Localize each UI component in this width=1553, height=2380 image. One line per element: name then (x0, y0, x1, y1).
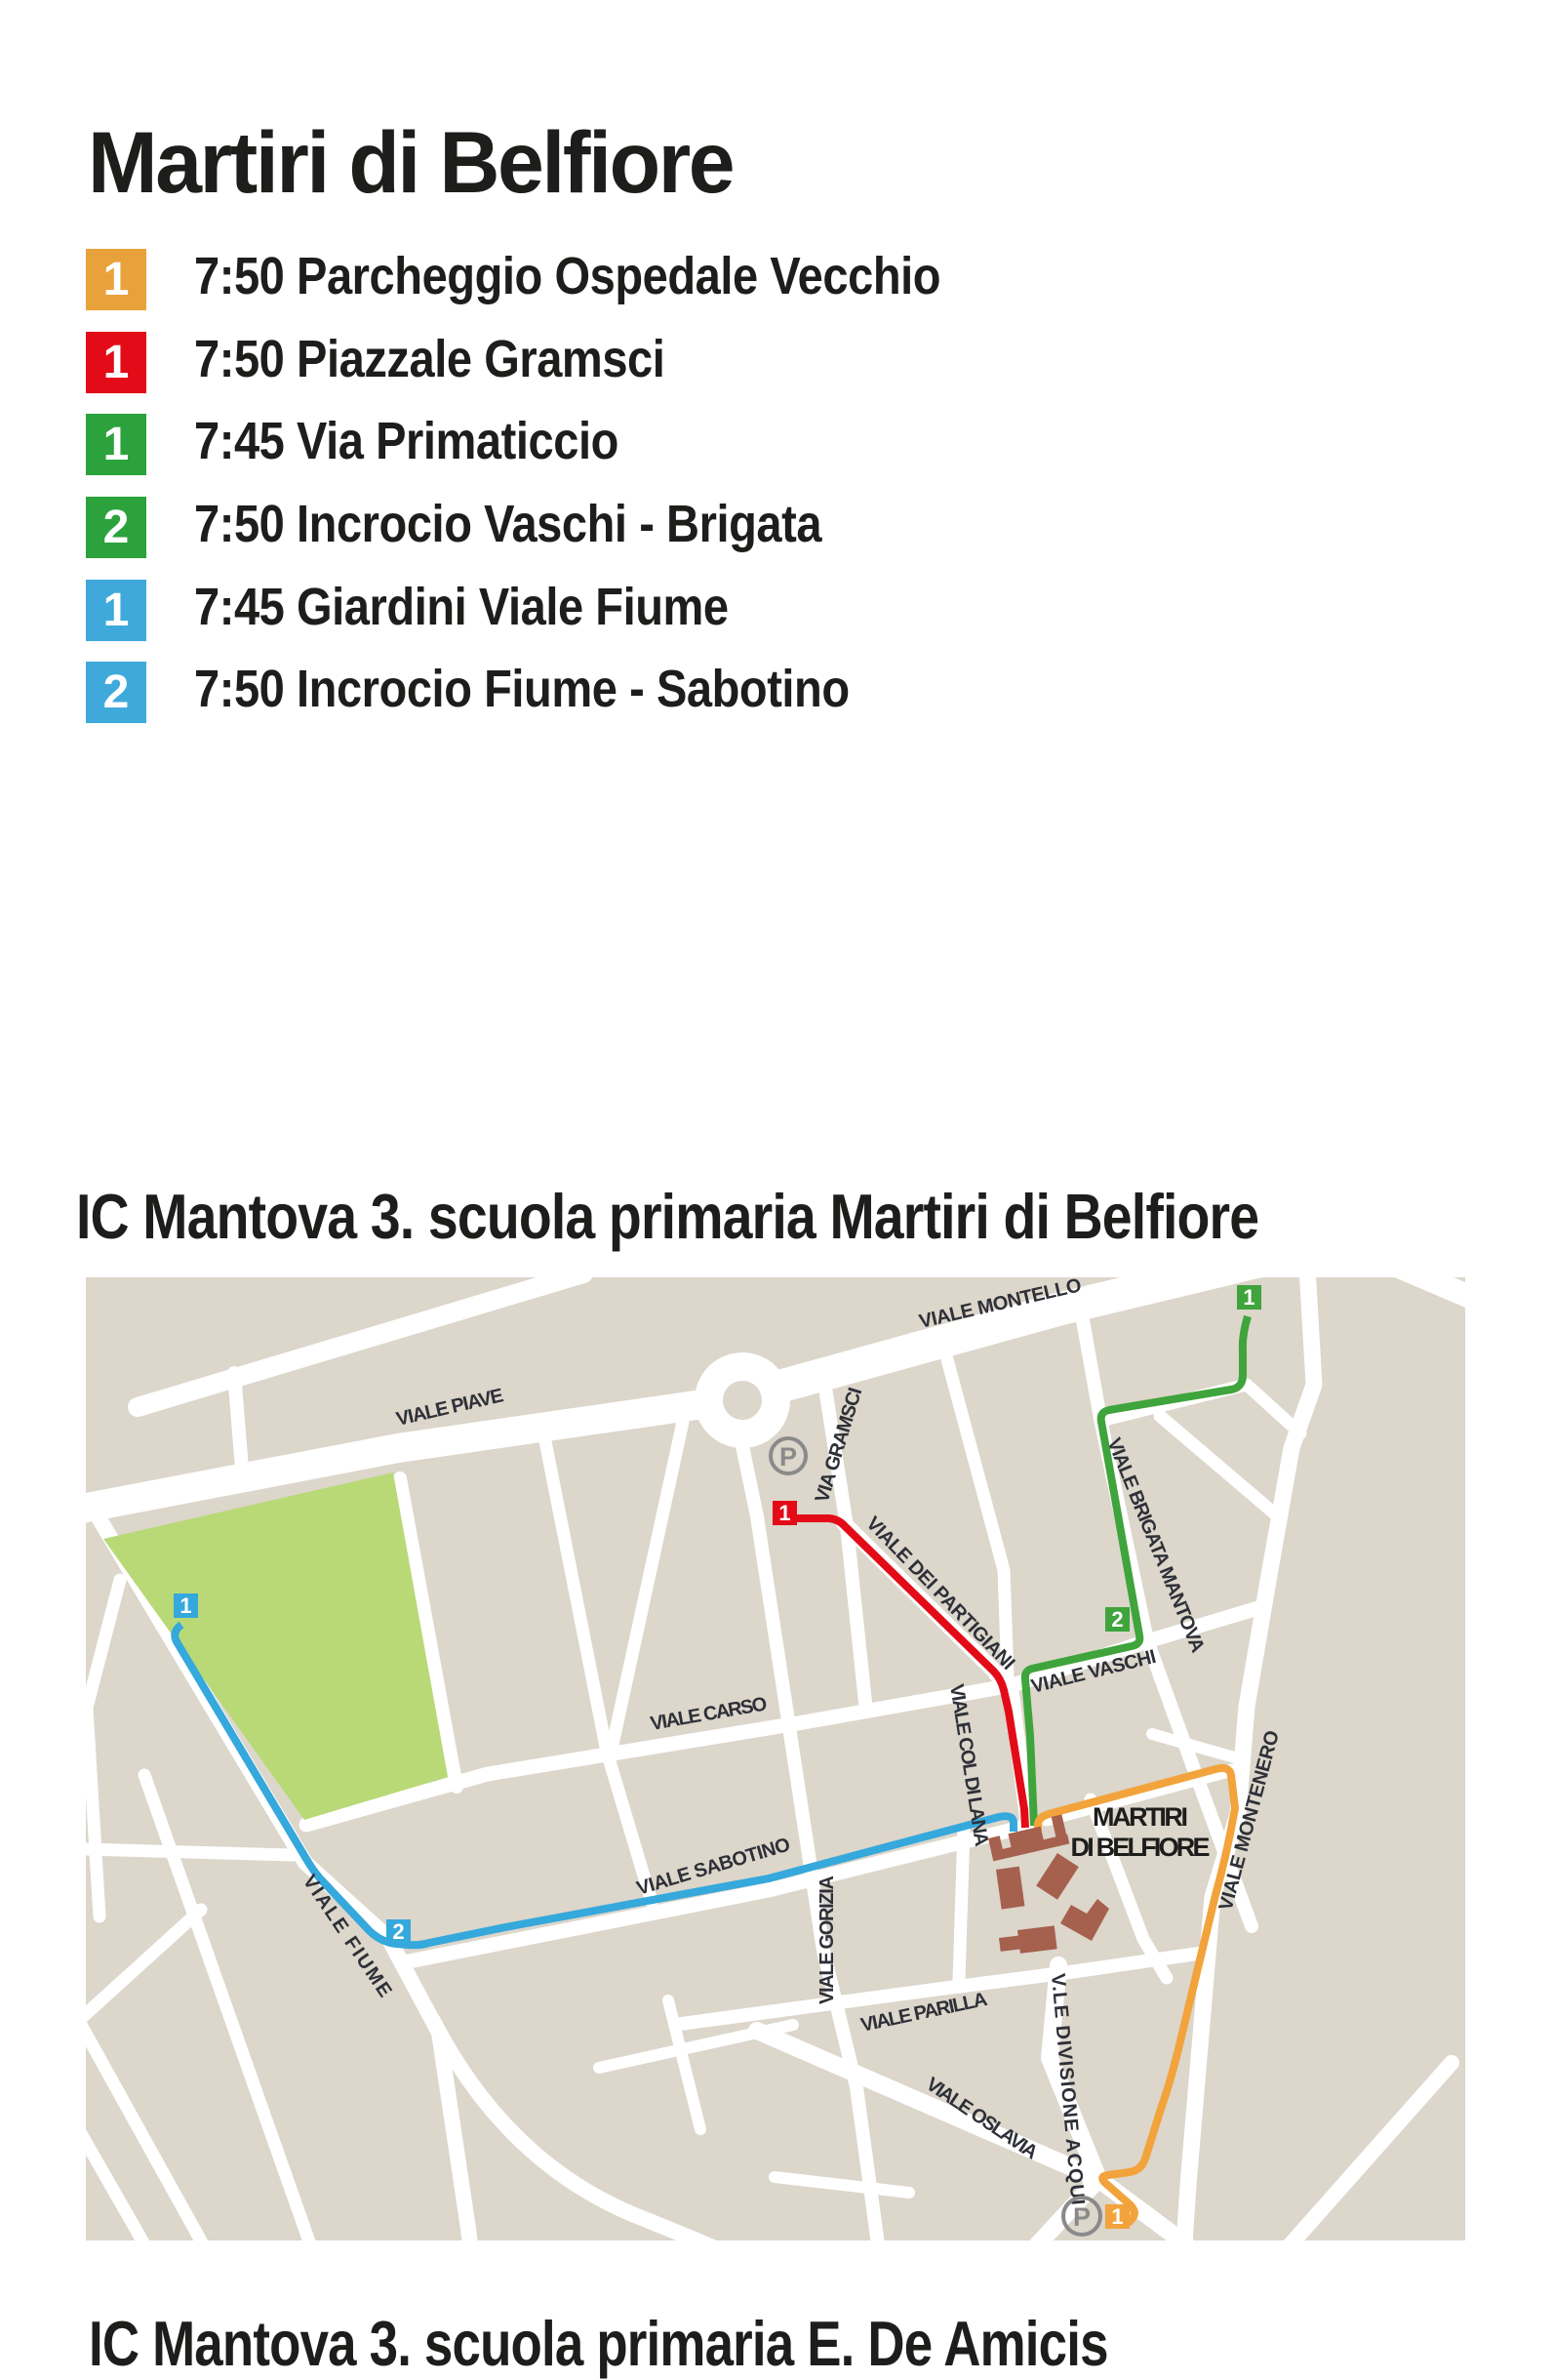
svg-text:1: 1 (179, 1593, 191, 1618)
svg-text:P: P (1073, 2202, 1091, 2232)
svg-text:MARTIRI: MARTIRI (1093, 1802, 1188, 1832)
svg-text:VIALE GORIZIA: VIALE GORIZIA (816, 1876, 838, 2004)
svg-text:DI BELFIORE: DI BELFIORE (1071, 1833, 1211, 1862)
svg-text:1: 1 (778, 1501, 790, 1525)
svg-text:1: 1 (1111, 2204, 1123, 2229)
svg-text:2: 2 (392, 1919, 404, 1944)
svg-text:P: P (779, 1442, 797, 1472)
svg-text:1: 1 (1243, 1285, 1254, 1310)
svg-text:2: 2 (1111, 1607, 1123, 1632)
